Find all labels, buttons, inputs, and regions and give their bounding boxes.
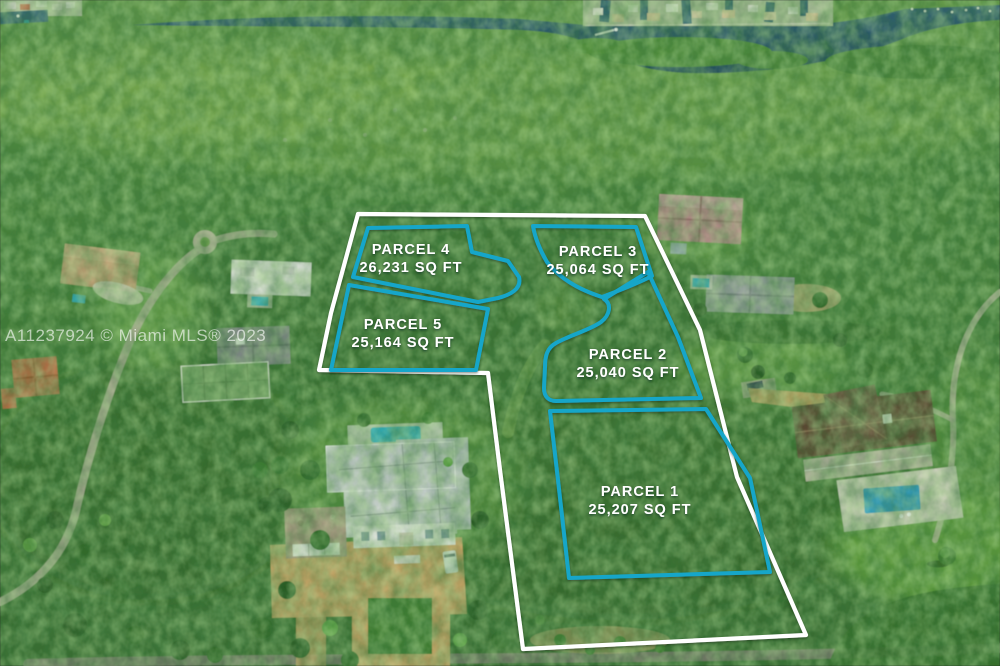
parcel-3-area: 25,064 SQ FT [546,262,649,278]
parcel-5-label: PARCEL 5 [364,317,442,333]
parcel-2-area: 25,040 SQ FT [576,365,679,381]
parcel-4-area: 26,231 SQ FT [359,260,462,276]
mls-watermark: A11237924 © Miami MLS® 2023 [5,326,266,345]
parcel-1-label: PARCEL 1 [601,484,679,500]
parcel-3-label: PARCEL 3 [559,244,637,260]
aerial-parcel-map: PARCEL 4 26,231 SQ FT PARCEL 3 25,064 SQ… [0,0,1000,666]
parcel-4-label: PARCEL 4 [372,242,450,258]
parcel-1-area: 25,207 SQ FT [588,502,691,518]
parcel-5-area: 25,164 SQ FT [351,335,454,351]
aerial-photo-canvas: PARCEL 4 26,231 SQ FT PARCEL 3 25,064 SQ… [0,0,1000,666]
parcel-2-label: PARCEL 2 [589,347,667,363]
